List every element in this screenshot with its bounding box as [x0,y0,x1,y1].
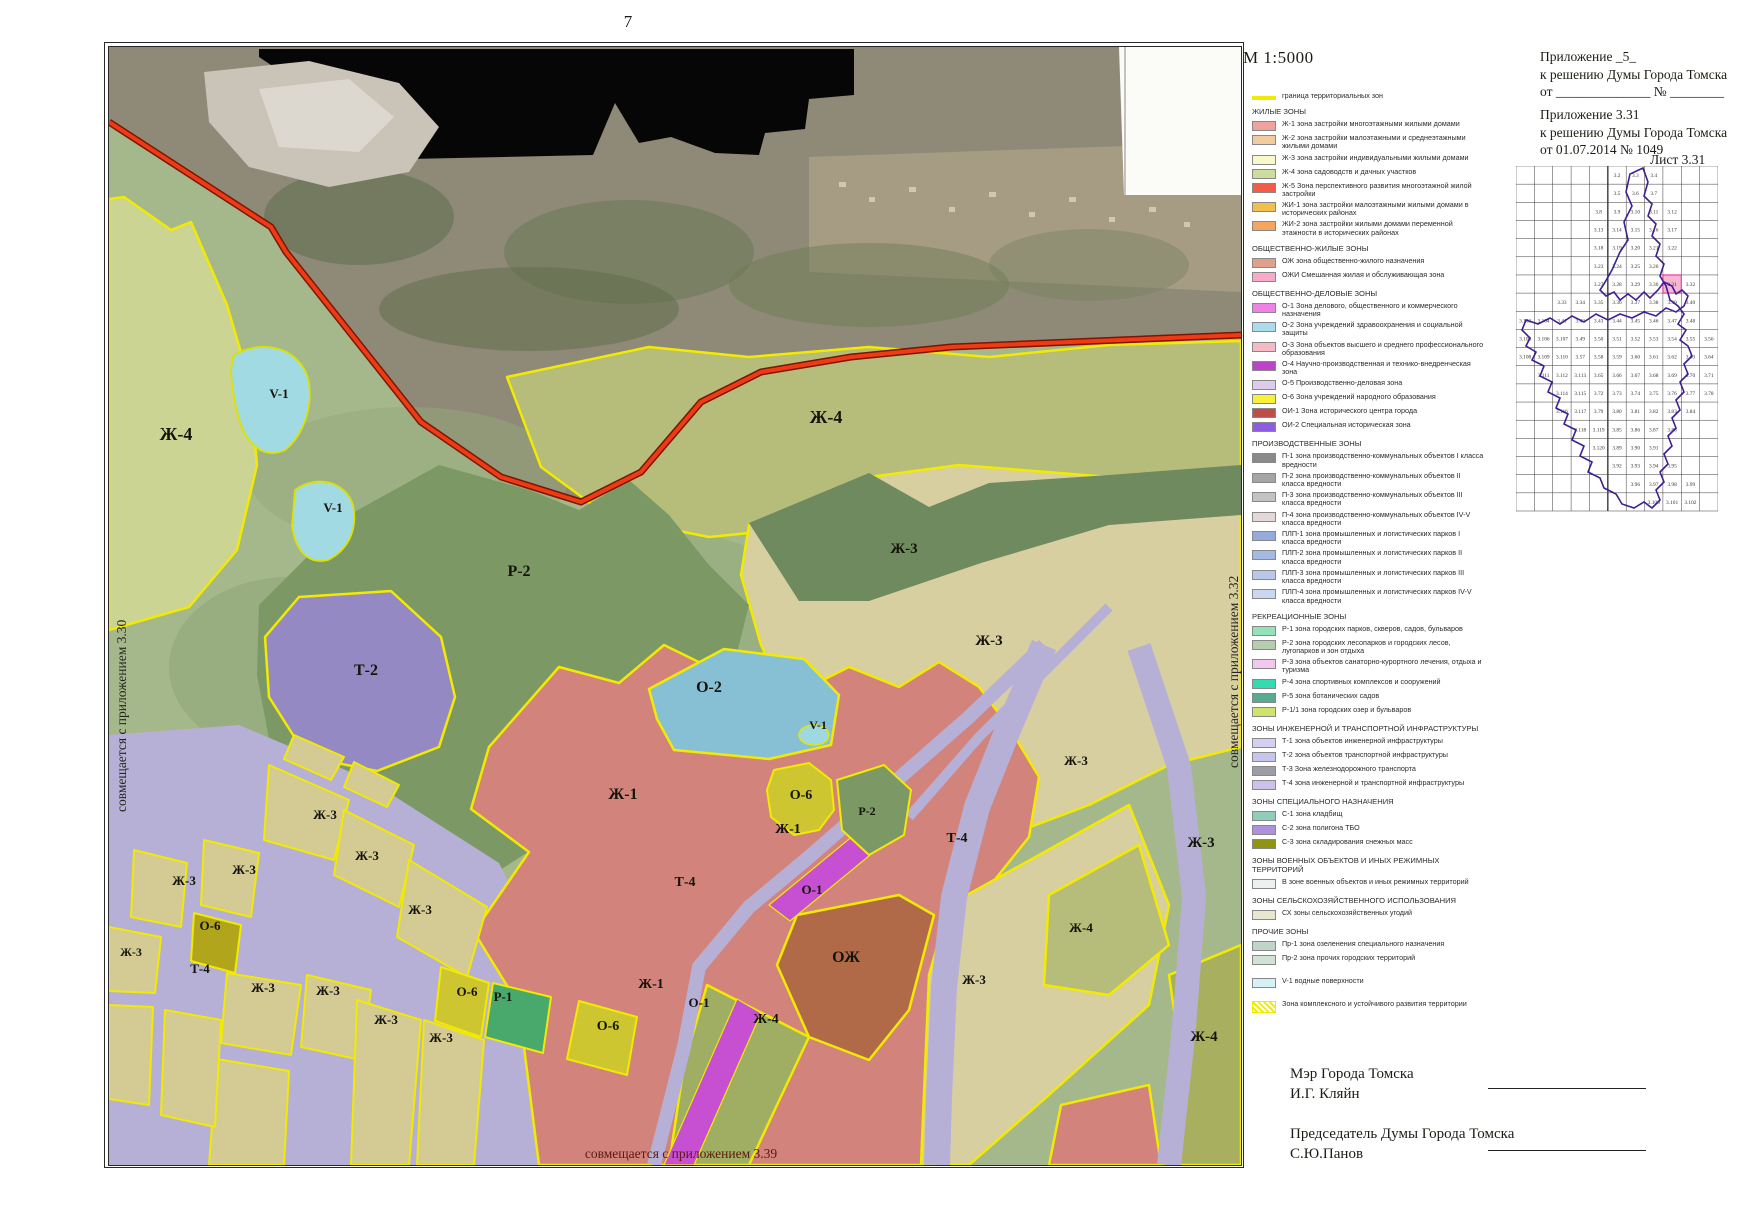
index-grid-cell-number: 3.77 [1686,391,1696,397]
map-canvas: Ж-4V-1V-1Ж-4Р-2Т-2Ж-3Ж-3О-2V-1Ж-1О-6Ж-1Р… [108,46,1242,1166]
legend-swatch [1252,258,1276,268]
index-grid-cell-number: 3.61 [1649,355,1659,361]
appendix1-line3: от ______________ № ________ [1540,83,1727,101]
index-grid-cell-number: 3.18 [1594,246,1604,252]
legend-swatch [1252,693,1276,703]
map-zone-label: О-6 [200,918,221,933]
signature-block-chairman: Председатель Думы Города Томска С.Ю.Пано… [1290,1124,1514,1164]
legend-swatch [1252,570,1276,580]
appendix2-line1: Приложение 3.31 [1540,106,1727,124]
map-zone-label: Ж-3 [1187,835,1214,851]
legend-swatch [1252,221,1276,231]
index-grid-cell-number: 3.107 [1556,337,1568,343]
legend-item: ПЛП-3 зона промышленных и логистических … [1252,569,1484,585]
index-grid-cell-number: 3.112 [1556,373,1568,379]
legend-item-label: ПЛП-1 зона промышленных и логистических … [1282,530,1484,546]
legend-swatch [1252,408,1276,418]
index-grid-cell-number: 3.26 [1649,264,1659,270]
legend-item: граница территориальных зон [1252,92,1484,100]
index-grid-cell-number: 3.82 [1649,409,1659,415]
index-grid-cell-number: 3.12 [1667,209,1677,215]
index-grid-cell-number: 3.13 [1594,228,1604,234]
index-grid-cell-number: 3.71 [1704,373,1714,379]
index-grid-cell-number: 3.66 [1612,373,1622,379]
index-grid-cell-number: 3.23 [1594,264,1604,270]
map-zone-label: Ж-4 [160,424,193,444]
map-zone-label: Ж-3 [232,862,256,877]
legend-item: ПЛП-2 зона промышленных и логистических … [1252,549,1484,565]
map-zone-label: Ж-1 [638,977,664,992]
legend-item-label: Ж-1 зона застройки многоэтажными жилыми … [1282,120,1460,128]
appendix-note-2: Приложение 3.31 к решению Думы Города То… [1540,106,1727,159]
legend-swatch [1252,121,1276,131]
legend-item: Р-1/1 зона городских озер и бульваров [1252,706,1484,717]
index-grid-cell-number: 3.32 [1686,282,1696,288]
legend-item-label: П-2 зона производственно-коммунальных об… [1282,472,1484,488]
index-grid-cell-number: 3.44 [1612,318,1622,324]
map-zone-label: О-6 [790,788,813,803]
map-zone-label: Ж-1 [775,822,801,837]
legend-item: ЖИ-2 зона застройки жилыми домами переме… [1252,220,1484,236]
index-grid-cell-number: 3.30 [1649,282,1659,288]
legend-item: Р-4 зона спортивных комплексов и сооруже… [1252,678,1484,689]
legend-swatch [1252,183,1276,193]
legend-item: ОИ-2 Специальная историческая зона [1252,421,1484,432]
index-grid-cell-number: 3.79 [1594,409,1604,415]
index-grid-cell-number: 3.95 [1667,464,1677,470]
index-grid-cell-number: 3.96 [1631,482,1641,488]
index-grid-cell-number: 3.50 [1594,337,1604,343]
legend-item: Р-3 зона объектов санаторно-курортного л… [1252,658,1484,674]
legend-item: Ж-5 Зона перспективного развития многоэт… [1252,182,1484,198]
legend-item: П-2 зона производственно-коммунальных об… [1252,472,1484,488]
index-grid-cell-number: 3.6 [1632,191,1639,197]
index-grid-cell-number: 3.20 [1631,246,1641,252]
edge-caption-left: совмещается с приложением 3.30 [114,620,130,812]
legend-swatch [1252,839,1276,849]
map-zone-label: Ж-4 [1190,1029,1218,1045]
legend-item-label: Т-2 зона объектов транспортной инфрастру… [1282,751,1448,759]
legend-swatch [1252,303,1276,313]
map-zone-label: Ж-3 [1064,753,1088,768]
legend-swatch [1252,202,1276,212]
legend-swatch [1252,169,1276,179]
legend-item: ОЖ зона общественно-жилого назначения [1252,257,1484,268]
legend-item: Т-4 зона инженерной и транспортной инфра… [1252,779,1484,790]
index-grid-cell-number: 3.2 [1614,173,1621,179]
legend-item: О-3 Зона объектов высшего и среднего про… [1252,341,1484,357]
index-grid-cell-number: 3.60 [1631,355,1641,361]
legend-item: П-1 зона производственно-коммунальных об… [1252,452,1484,468]
legend-item: ПЛП-1 зона промышленных и логистических … [1252,530,1484,546]
index-grid-cell-number: 3.35 [1594,300,1604,306]
legend-swatch [1252,135,1276,145]
legend-item: V-1 водные поверхности [1252,977,1484,988]
legend-swatch [1252,780,1276,790]
legend-swatch [1252,626,1276,636]
index-grid-cell-number: 3.58 [1594,355,1604,361]
index-grid-cell-number: 3.120 [1593,445,1605,451]
legend-item: Ж-4 зона садоводств и дачных участков [1252,168,1484,179]
legend-swatch [1252,380,1276,390]
index-grid-cell-number: 3.69 [1667,373,1677,379]
index-grid-cell-number: 3.36 [1612,300,1622,306]
legend-item-label: О-3 Зона объектов высшего и среднего про… [1282,341,1484,357]
legend-section-heading: ЗОНЫ ИНЖЕНЕРНОЙ И ТРАНСПОРТНОЙ ИНФРАСТРУ… [1252,724,1484,733]
legend-item-label: Т-1 зона объектов инженерной инфраструкт… [1282,737,1443,745]
legend-swatch [1252,825,1276,835]
index-grid-cell-number: 3.10 [1631,209,1641,215]
legend-item-label: ЖИ-1 зона застройки малоэтажными жилыми … [1282,201,1484,217]
legend-item: Ж-2 зона застройки малоэтажными и средне… [1252,134,1484,150]
legend-item: Т-3 Зона железнодорожного транспорта [1252,765,1484,776]
index-grid-cell-number: 3.4 [1650,173,1657,179]
legend-swatch [1252,342,1276,352]
legend-item-label: Зона комплексного и устойчивого развития… [1282,1000,1467,1008]
map-zone-label: Ж-3 [962,972,986,987]
index-grid-cell-number: 3.54 [1667,337,1677,343]
index-grid-cell-number: 3.85 [1612,427,1622,433]
legend-item-label: ОИ-2 Специальная историческая зона [1282,421,1411,429]
legend-swatch [1252,272,1276,282]
chairman-title: Председатель Думы Города Томска [1290,1124,1514,1144]
edge-caption-bottom: совмещается с приложением 3.39 [556,1146,806,1162]
index-grid-cell-number: 3.113 [1574,373,1586,379]
index-grid-cell-number: 3.9 [1614,209,1621,215]
index-grid-cell-number: 3.40 [1686,300,1696,306]
legend-item-label: С-1 зона кладбищ [1282,810,1342,818]
legend-swatch [1252,394,1276,404]
legend-item: ЖИ-1 зона застройки малоэтажными жилыми … [1252,201,1484,217]
map-zone-label: V-1 [323,500,342,515]
map-zone-label: О-2 [696,679,722,696]
index-grid-cell-number: 3.115 [1574,391,1586,397]
legend-item: Пр-1 зона озеленения специального назнач… [1252,940,1484,951]
legend-swatch [1252,1001,1276,1013]
index-grid-cell-number: 3.89 [1612,445,1622,451]
legend-item-label: О-6 Зона учреждений народного образовани… [1282,393,1436,401]
legend-swatch [1252,879,1276,889]
legend-swatch [1252,640,1276,650]
map-zone-label: V-1 [809,718,827,732]
legend-swatch [1252,752,1276,762]
legend-item-label: П-4 зона производственно-коммунальных об… [1282,511,1484,527]
index-grid-cell-number: 3.48 [1686,318,1696,324]
legend-item: ОЖИ Смешанная жилая и обслуживающая зона [1252,271,1484,282]
legend-item-label: ПЛП-3 зона промышленных и логистических … [1282,569,1484,585]
index-grid-cell-number: 3.68 [1649,373,1659,379]
index-grid-cell-number: 3.102 [1684,500,1696,506]
index-grid-cell-number: 3.51 [1612,337,1622,343]
map-zone-label: Ж-3 [429,1030,453,1045]
map-zone-label: Ж-4 [753,1012,779,1027]
legend-swatch [1252,96,1276,100]
legend-item-label: Р-5 зона ботанических садов [1282,692,1379,700]
legend-item-label: Т-4 зона инженерной и транспортной инфра… [1282,779,1464,787]
legend-item: О-5 Производственно-деловая зона [1252,379,1484,390]
index-grid-cell-number: 3.29 [1631,282,1641,288]
map-zone-label: ОЖ [832,949,860,966]
index-grid-cell-number: 3.99 [1686,482,1696,488]
legend-item-label: Р-2 зона городских лесопарков и городски… [1282,639,1484,655]
index-grid-cell-number: 3.81 [1631,409,1641,415]
index-grid-cell-number: 3.53 [1649,337,1659,343]
legend-item-label: О-4 Научно-производственная и технико-вн… [1282,360,1484,376]
chairman-name: С.Ю.Панов [1290,1144,1514,1164]
index-grid-cell-number: 3.67 [1631,373,1641,379]
appendix1-line2: к решению Думы Города Томска [1540,66,1727,84]
index-grid-cell-number: 3.119 [1593,427,1605,433]
legend-item: Р-2 зона городских лесопарков и городски… [1252,639,1484,655]
legend-item-label: Р-1/1 зона городских озер и бульваров [1282,706,1411,714]
index-grid-cell-number: 3.25 [1631,264,1641,270]
legend-section-heading: ОБЩЕСТВЕННО-ДЕЛОВЫЕ ЗОНЫ [1252,289,1484,298]
map-zone-label: Р-2 [858,804,875,818]
legend-section-heading: ЗОНЫ СПЕЦИАЛЬНОГО НАЗНАЧЕНИЯ [1252,797,1484,806]
legend-swatch [1252,978,1276,988]
map-zone-label: Т-4 [947,831,968,846]
legend-swatch [1252,679,1276,689]
index-grid-cell-number: 3.101 [1666,500,1678,506]
legend-swatch [1252,453,1276,463]
legend-section-heading: РЕКРЕАЦИОННЫЕ ЗОНЫ [1252,612,1484,621]
mayor-title: Мэр Города Томска [1290,1064,1414,1084]
map-zone-label: Ж-4 [810,407,843,427]
index-grid-cell-number: 3.73 [1612,391,1622,397]
index-grid-cell-number: 3.28 [1612,282,1622,288]
legend-item-label: С-2 зона полигона ТБО [1282,824,1360,832]
index-grid-cell-number: 3.98 [1667,482,1677,488]
index-grid-cell-number: 3.74 [1631,391,1641,397]
legend-section-heading: ПРОИЗВОДСТВЕННЫЕ ЗОНЫ [1252,439,1484,448]
index-grid-cell-number: 3.59 [1612,355,1622,361]
index-grid-cell-number: 3.8 [1595,209,1602,215]
legend: граница территориальных зонЖИЛЫЕ ЗОНЫЖ-1… [1252,92,1484,1016]
map-zone-label: Ж-3 [355,848,379,863]
legend-swatch [1252,512,1276,522]
legend-item-label: ЖИ-2 зона застройки жилыми домами переме… [1282,220,1484,236]
index-grid-cell-number: 3.57 [1576,355,1586,361]
legend-item-label: граница территориальных зон [1282,92,1383,100]
map-zone-label: Ж-3 [316,983,340,998]
mayor-name: И.Г. Кляйн [1290,1084,1414,1104]
legend-item: ПЛП-4 зона промышленных и логистических … [1252,588,1484,604]
index-grid-cell-number: 3.110 [1556,355,1568,361]
map-zone-label: О-1 [802,882,823,897]
appendix2-line2: к решению Думы Города Томска [1540,124,1727,142]
legend-item-label: Ж-4 зона садоводств и дачных участков [1282,168,1416,176]
legend-item: Т-2 зона объектов транспортной инфрастру… [1252,751,1484,762]
legend-item: П-4 зона производственно-коммунальных об… [1252,511,1484,527]
legend-item-label: П-3 зона производственно-коммунальных об… [1282,491,1484,507]
legend-section-heading: ЗОНЫ ВОЕННЫХ ОБЪЕКТОВ И ИНЫХ РЕЖИМНЫХ ТЕ… [1252,856,1484,874]
appendix-note-1: Приложение _5_ к решению Думы Города Том… [1540,48,1727,101]
map-zone-label: О-6 [597,1019,620,1034]
legend-item-label: СХ зоны сельскохозяйственных угодий [1282,909,1412,917]
index-grid-cell-number: 3.80 [1612,409,1622,415]
map-zone-label: О-6 [457,984,478,999]
index-grid-cell-number: 3.90 [1631,445,1641,451]
index-grid-cell-number: 3.52 [1631,337,1641,343]
legend-item-label: V-1 водные поверхности [1282,977,1364,985]
index-grid-cell-number: 3.5 [1614,191,1621,197]
index-grid-cell-number: 3.3 [1632,173,1639,179]
legend-item: Пр-2 зона прочих городских территорий [1252,954,1484,965]
map-zone-label: Т-2 [354,662,378,679]
legend-item: О-2 Зона учреждений здравоохранения и со… [1252,321,1484,337]
map-zone-label: Ж-3 [975,633,1002,649]
legend-swatch [1252,707,1276,717]
legend-section-heading: ЖИЛЫЕ ЗОНЫ [1252,107,1484,116]
index-grid-cell-number: 3.56 [1704,337,1714,343]
index-grid-cell-number: 3.91 [1649,445,1659,451]
mayor-signature-line [1488,1088,1646,1089]
appendix1-line1: Приложение _5_ [1540,48,1727,66]
map-zone-label: Ж-3 [313,807,337,822]
legend-item-label: Ж-5 Зона перспективного развития многоэт… [1282,182,1484,198]
index-grid-cell-number: 3.106 [1537,337,1549,343]
legend-item: С-1 зона кладбищ [1252,810,1484,821]
index-grid-cell-number: 3.87 [1649,427,1659,433]
legend-item-label: ОИ-1 Зона исторического центра города [1282,407,1417,415]
legend-item: П-3 зона производственно-коммунальных об… [1252,491,1484,507]
legend-item-label: ПЛП-2 зона промышленных и логистических … [1282,549,1484,565]
legend-item: Ж-1 зона застройки многоэтажными жилыми … [1252,120,1484,131]
index-grid-cell-number: 3.97 [1649,482,1659,488]
index-grid-cell-number: 3.76 [1667,391,1677,397]
legend-swatch [1252,955,1276,965]
legend-swatch [1252,322,1276,332]
legend-swatch [1252,531,1276,541]
map-zone-label: Ж-3 [374,1012,398,1027]
legend-item: Ж-3 зона застройки индивидуальными жилым… [1252,154,1484,165]
legend-item-label: Пр-1 зона озеленения специального назнач… [1282,940,1444,948]
map-frame: Ж-4V-1V-1Ж-4Р-2Т-2Ж-3Ж-3О-2V-1Ж-1О-6Ж-1Р… [104,42,1244,1168]
signature-block-mayor: Мэр Города Томска И.Г. Кляйн [1290,1064,1414,1104]
legend-item-label: Т-3 Зона железнодорожного транспорта [1282,765,1416,773]
index-grid-cell-number: 3.93 [1631,464,1641,470]
index-map: 3.23.33.43.53.63.73.83.93.103.113.123.13… [1516,166,1718,517]
index-grid-cell-number: 3.108 [1519,355,1531,361]
index-grid-cell-number: 3.62 [1667,355,1677,361]
index-grid-cell-number: 3.45 [1631,318,1641,324]
no-imagery-corner [1119,47,1241,195]
legend-item: С-3 зона складирования снежных масс [1252,838,1484,849]
edge-caption-right: совмещается с приложением 3.32 [1226,576,1242,768]
page-number: 7 [598,12,658,32]
index-grid-cell-number: 3.22 [1667,246,1677,252]
map-zone-label: Ж-4 [1069,920,1093,935]
legend-item-label: О-1 Зона делового, общественного и комме… [1282,302,1484,318]
index-grid-cell-number: 3.86 [1631,427,1641,433]
legend-item: СХ зоны сельскохозяйственных угодий [1252,909,1484,920]
legend-item-label: Ж-2 зона застройки малоэтажными и средне… [1282,134,1484,150]
index-grid-cell-number: 3.33 [1557,300,1567,306]
index-grid-cell-number: 3.7 [1650,191,1657,197]
index-grid-cell-number: 3.72 [1594,391,1604,397]
legend-item: В зоне военных объектов и иных режимных … [1252,878,1484,889]
legend-swatch [1252,738,1276,748]
legend-swatch [1252,422,1276,432]
index-grid-cell-number: 3.78 [1704,391,1714,397]
index-grid-cell-number: 3.55 [1686,337,1696,343]
legend-item-label: П-1 зона производственно-коммунальных об… [1282,452,1484,468]
index-grid-cell-number: 3.38 [1649,300,1659,306]
legend-item: Р-5 зона ботанических садов [1252,692,1484,703]
legend-section-heading: ЗОНЫ СЕЛЬСКОХОЗЯЙСТВЕННОГО ИСПОЛЬЗОВАНИЯ [1252,896,1484,905]
map-zone-label: Р-1 [494,989,513,1004]
legend-swatch [1252,659,1276,669]
index-grid-cell-number: 3.94 [1649,464,1659,470]
legend-item: Р-1 зона городских парков, скверов, садо… [1252,625,1484,636]
index-grid-cell-number: 3.17 [1667,228,1677,234]
legend-item-label: Пр-2 зона прочих городских территорий [1282,954,1415,962]
legend-swatch [1252,589,1276,599]
legend-swatch [1252,361,1276,371]
index-grid-cells: 3.23.33.43.53.63.73.83.93.103.113.123.13… [1516,166,1718,511]
index-grid-cell-number: 3.116 [1556,409,1568,415]
index-grid-cell-number: 3.92 [1612,464,1622,470]
index-grid-cell-number: 3.34 [1576,300,1586,306]
legend-item: О-1 Зона делового, общественного и комме… [1252,302,1484,318]
legend-swatch [1252,492,1276,502]
legend-item: Т-1 зона объектов инженерной инфраструкт… [1252,737,1484,748]
index-grid-cell-number: 3.15 [1631,228,1641,234]
legend-item-label: Ж-3 зона застройки индивидуальными жилым… [1282,154,1469,162]
legend-item-label: О-5 Производственно-деловая зона [1282,379,1402,387]
legend-section-heading: ПРОЧИЕ ЗОНЫ [1252,927,1484,936]
legend-item-label: Р-1 зона городских парков, скверов, садо… [1282,625,1463,633]
map-zone-label: Ж-3 [890,541,917,557]
legend-item: О-6 Зона учреждений народного образовани… [1252,393,1484,404]
index-grid-cell-number: 3.84 [1686,409,1696,415]
map-zone-label: Р-2 [507,563,530,580]
map-zone-label: Т-4 [190,961,210,976]
map-zone-label: Ж-3 [120,945,142,959]
legend-item: О-4 Научно-производственная и технико-вн… [1252,360,1484,376]
index-grid-cell-number: 3.65 [1594,373,1604,379]
legend-swatch [1252,910,1276,920]
legend-item-label: В зоне военных объектов и иных режимных … [1282,878,1469,886]
legend-item-label: Р-3 зона объектов санаторно-курортного л… [1282,658,1484,674]
index-grid-cell-number: 3.64 [1704,355,1714,361]
legend-item-label: Р-4 зона спортивных комплексов и сооруже… [1282,678,1441,686]
index-grid-cell-number: 3.117 [1574,409,1586,415]
map-zone-label: Ж-3 [408,902,432,917]
legend-swatch [1252,550,1276,560]
index-grid-cell-number: 3.75 [1649,391,1659,397]
index-grid-cell-number: 3.14 [1612,228,1622,234]
map-zone-label: О-1 [689,995,710,1010]
legend-swatch [1252,941,1276,951]
map-zone-label: V-1 [269,386,288,401]
legend-item-label: ПЛП-4 зона промышленных и логистических … [1282,588,1484,604]
chairman-signature-line [1488,1150,1646,1151]
legend-swatch [1252,473,1276,483]
index-grid-cell-number: 3.49 [1576,337,1586,343]
legend-swatch [1252,155,1276,165]
legend-swatch [1252,766,1276,776]
legend-item-label: ОЖ зона общественно-жилого назначения [1282,257,1424,265]
map-scale-label: М 1:5000 [1243,48,1314,68]
index-grid-cell-number: 3.46 [1649,318,1659,324]
legend-section-heading: ОБЩЕСТВЕННО-ЖИЛЫЕ ЗОНЫ [1252,244,1484,253]
legend-item: ОИ-1 Зона исторического центра города [1252,407,1484,418]
map-zone-label: Ж-3 [251,980,275,995]
legend-item: Зона комплексного и устойчивого развития… [1252,1000,1484,1013]
legend-item-label: С-3 зона складирования снежных масс [1282,838,1413,846]
legend-item-label: ОЖИ Смешанная жилая и обслуживающая зона [1282,271,1444,279]
